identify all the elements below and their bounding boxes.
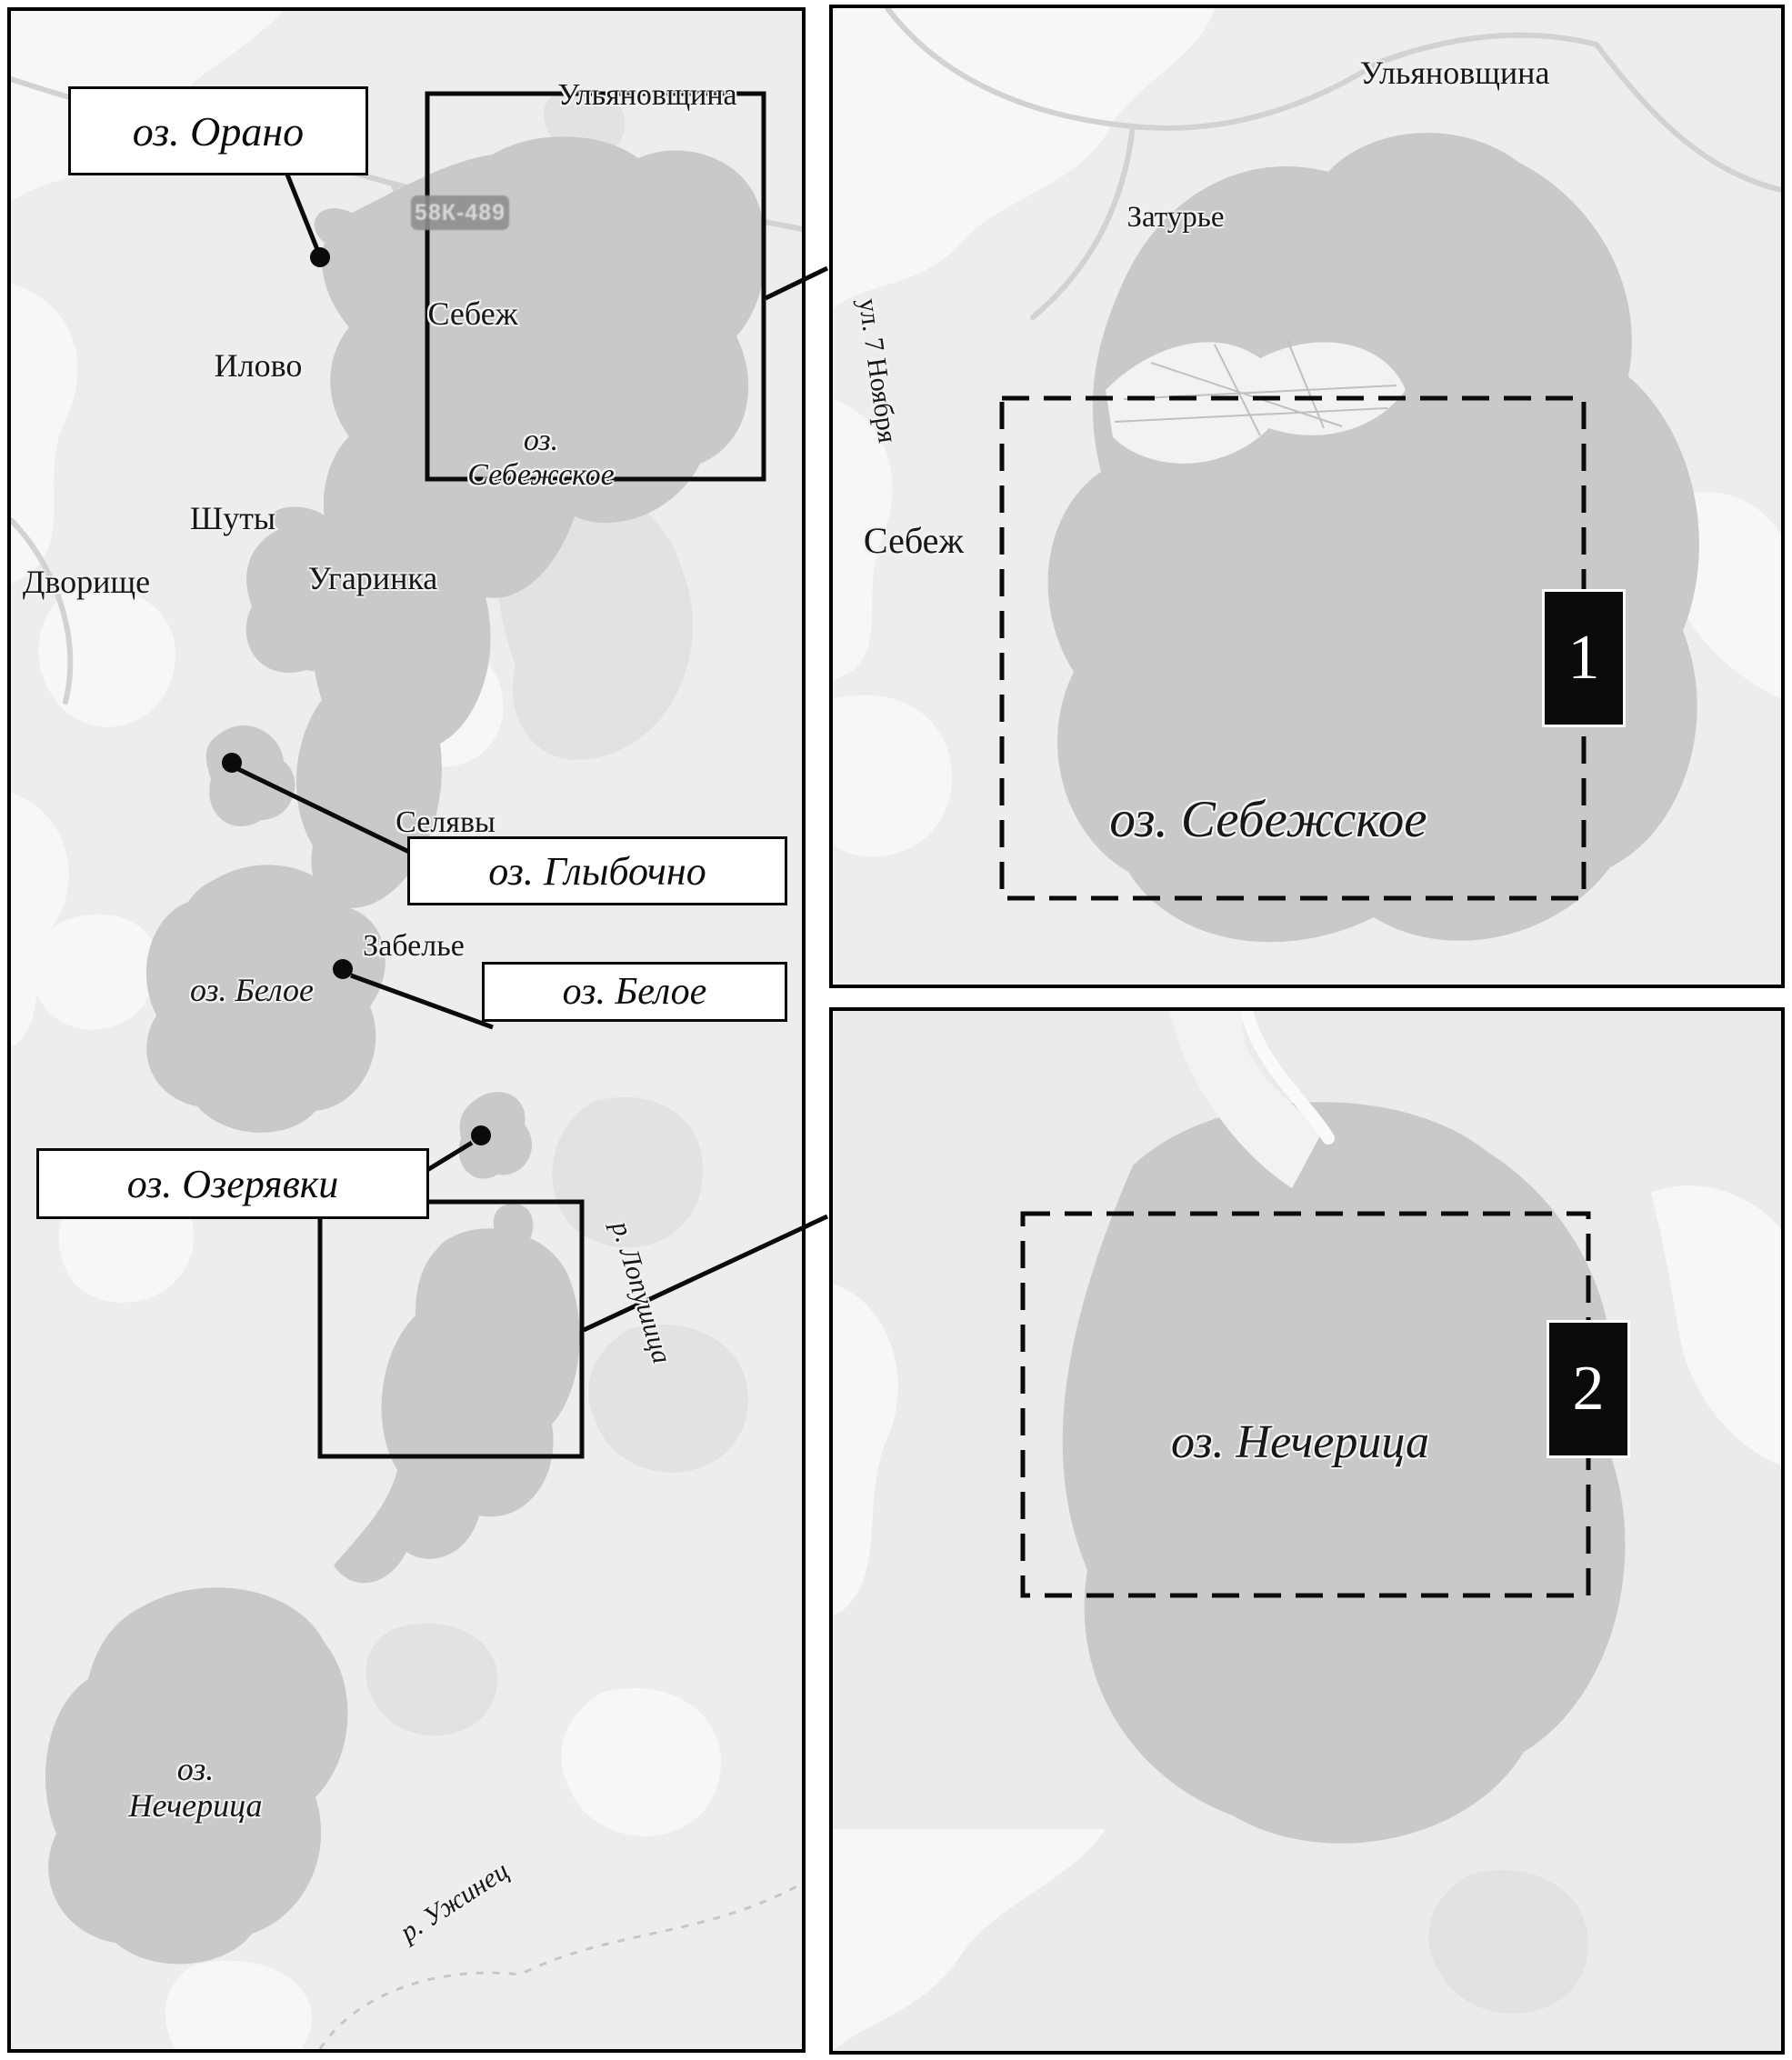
callout-beloye-text: оз. Белое — [563, 970, 707, 1014]
lake-label-sebezhskoye-inset: оз. Себежское — [996, 791, 1541, 849]
place-label-shuty: Шуты — [151, 500, 315, 536]
lake-label-necheritsa-inset: оз. Нечерица — [1027, 1416, 1573, 1469]
inset-marker-1-number: 1 — [1568, 622, 1600, 695]
road-line — [1597, 45, 1781, 190]
lake-label-beloye: оз. Белое — [145, 972, 358, 1008]
boundary-line — [320, 1884, 802, 2049]
place-label-ulyanovschina-inset: Ульяновщина — [1327, 55, 1582, 91]
lake-label-sebezhskoye-line2: Себежское — [414, 458, 668, 493]
land-patch — [38, 588, 175, 727]
place-label-ilovo: Илово — [176, 347, 340, 384]
forest-patch — [1428, 1870, 1588, 2014]
land-patch — [561, 1688, 721, 1836]
callout-box-glybochno: оз. Глыбочно — [407, 836, 787, 905]
place-label-ugarinka: Угаринка — [285, 560, 461, 596]
lake-label-sebezhskoye-line1: оз. — [414, 424, 668, 458]
place-label-dvorishche: Дворище — [5, 564, 168, 600]
lake-label-sebezhskoye-left: оз. Себежское — [414, 424, 668, 493]
callout-box-beloye: оз. Белое — [482, 962, 787, 1022]
lake-necheritsa-north-shape — [334, 1228, 580, 1583]
figure-canvas: оз. Орано оз. Глыбочно оз. Белое оз. Озе… — [0, 0, 1792, 2060]
land-patch — [165, 1961, 312, 2049]
land-patch — [1651, 1185, 1781, 1465]
inset-necheritsa-background — [833, 1011, 1781, 2051]
land-patch — [833, 1284, 898, 1615]
land-patch — [833, 1829, 1106, 2051]
callout-box-orano: оз. Орано — [68, 86, 368, 175]
land-patch — [11, 284, 78, 584]
place-label-zabelye: Забелье — [330, 929, 497, 964]
callout-glybochno-text: оз. Глыбочно — [488, 848, 706, 895]
inset-marker-1: 1 — [1542, 589, 1626, 727]
lake-ozeryavki-shape — [459, 1092, 532, 1178]
inset-marker-2: 2 — [1547, 1320, 1630, 1458]
lake-glybochno-shape — [206, 725, 295, 826]
place-label-zaturye: Затурье — [1094, 201, 1257, 235]
place-label-ulyanovschina-left: Ульяновщина — [538, 78, 756, 113]
place-label-sebezh-left: Себеж — [391, 295, 555, 332]
lake-label-necheritsa-line2: Нечерица — [86, 1787, 305, 1824]
callout-orano-text: оз. Орано — [133, 107, 304, 155]
town-patch — [833, 695, 952, 857]
place-label-sebezh-inset: Себеж — [836, 521, 991, 562]
lake-label-necheritsa-left: оз. Нечерица — [86, 1751, 305, 1825]
lake-label-necheritsa-line1: оз. — [86, 1751, 305, 1787]
place-label-selyavy: Селявы — [362, 805, 529, 840]
lake-sebezhskoye-shape — [296, 136, 766, 908]
land-patch — [32, 915, 158, 1030]
road-number-text: 58К-489 — [415, 200, 506, 226]
inset-panel-necheritsa — [829, 1007, 1785, 2055]
forest-patch — [365, 1624, 497, 1736]
callout-ozeryavki-text: оз. Озерявки — [127, 1161, 339, 1207]
callout-box-ozeryavki: оз. Озерявки — [36, 1148, 429, 1219]
road-number-badge: 58К-489 — [411, 195, 509, 230]
inset-marker-2-number: 2 — [1573, 1353, 1605, 1425]
lake-necheritsa-inset-shape — [1063, 1102, 1626, 1844]
